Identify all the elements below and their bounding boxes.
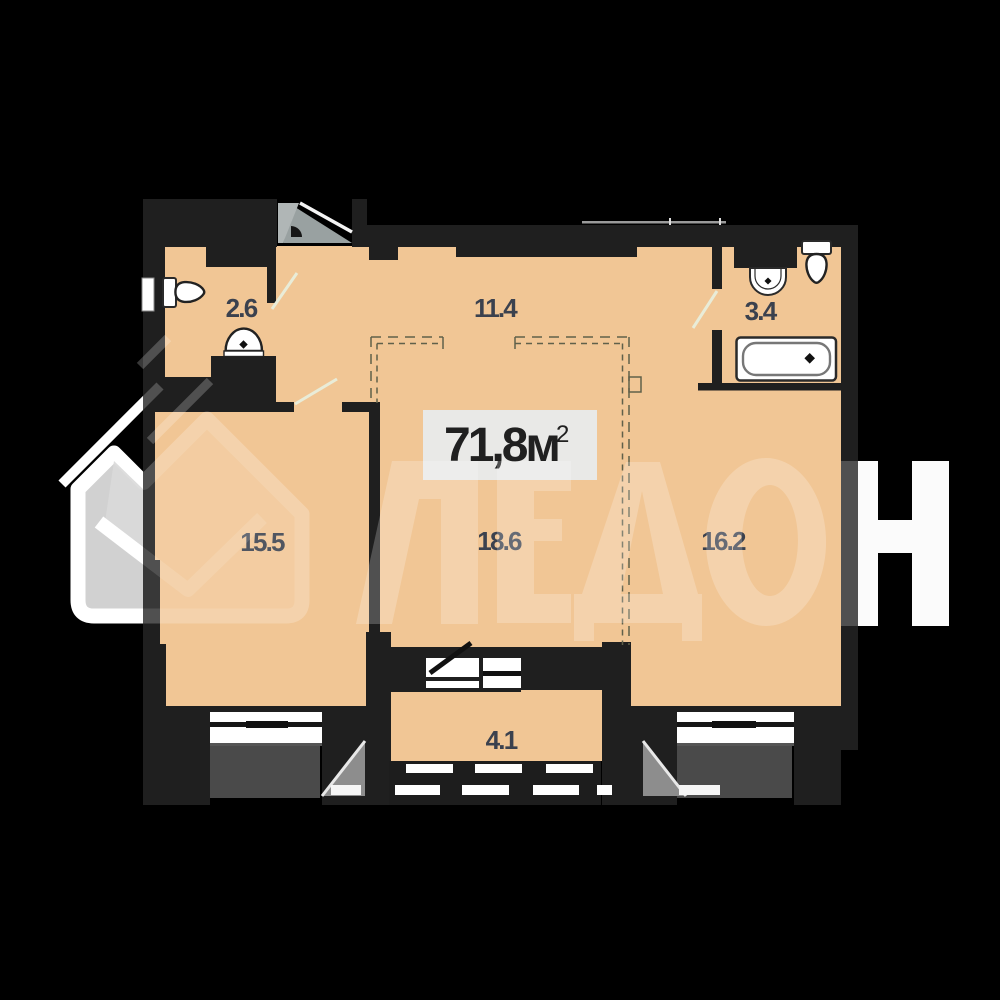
svg-text:4.1: 4.1 [486, 725, 518, 755]
svg-text:2.6: 2.6 [226, 293, 258, 323]
svg-text:3.4: 3.4 [745, 296, 778, 326]
svg-text:2: 2 [556, 421, 569, 448]
svg-text:11.4: 11.4 [474, 293, 518, 323]
